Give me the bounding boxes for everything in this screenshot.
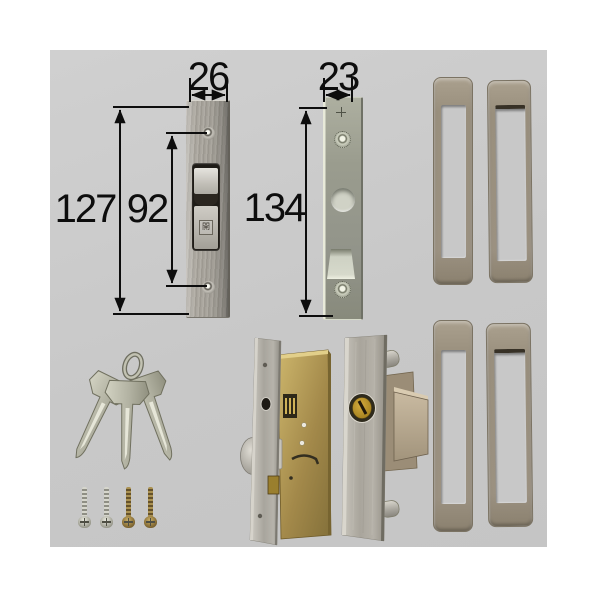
frame-opening [495, 105, 527, 261]
screw-hole-bottom [334, 281, 351, 298]
plate-screw-top [202, 127, 215, 140]
thumbturn-slider [194, 168, 218, 194]
spacer-frame-2 [487, 80, 533, 283]
screw-head [122, 516, 135, 528]
latch-cutout [327, 249, 355, 279]
key-middle [102, 380, 149, 469]
brass-lock-case [278, 350, 331, 539]
key-cylinder [349, 394, 376, 423]
lock-housing [382, 372, 428, 471]
product-photo: 開 [0, 0, 600, 600]
frame-opening [494, 349, 527, 503]
screw-head [144, 516, 157, 528]
frame-opening [441, 105, 466, 258]
bolt-window [268, 476, 279, 494]
screw-shaft [148, 487, 153, 518]
frame-opening [441, 350, 466, 504]
screw-head [78, 516, 91, 528]
mounting-screw-silver-2 [100, 487, 113, 530]
key-set [60, 350, 180, 485]
thumbturn-recess: 開 [192, 163, 220, 251]
key-ring [122, 352, 145, 380]
mortise-lock-body [235, 332, 340, 550]
lock-faceplate [250, 338, 281, 545]
screw-head [100, 516, 113, 528]
alignment-cross-mark [336, 107, 346, 117]
screw-shaft [104, 487, 109, 518]
plate-screw-bottom [202, 281, 215, 294]
faceplate-hole [261, 398, 271, 411]
cylinder-hole [331, 188, 355, 212]
exterior-faceplate [342, 335, 387, 541]
spacer-frame-4 [486, 323, 533, 528]
thumbturn-slider-lower: 開 [194, 206, 218, 249]
mounting-screw-brass-1 [122, 487, 135, 530]
strike-plate [323, 97, 363, 320]
screw-shaft [126, 487, 131, 518]
open-kanji-stamp: 開 [199, 220, 213, 235]
screw-hole-top [334, 131, 351, 148]
thumbturn-slider-band [194, 194, 218, 206]
mounting-screw-silver-1 [78, 487, 91, 530]
mounting-screw-brass-2 [144, 487, 157, 530]
screw-shaft [82, 487, 87, 518]
outdoor-cylinder-plate [340, 330, 440, 545]
indoor-thumbturn-plate: 開 [186, 100, 230, 318]
spacer-frame-1 [433, 77, 473, 285]
